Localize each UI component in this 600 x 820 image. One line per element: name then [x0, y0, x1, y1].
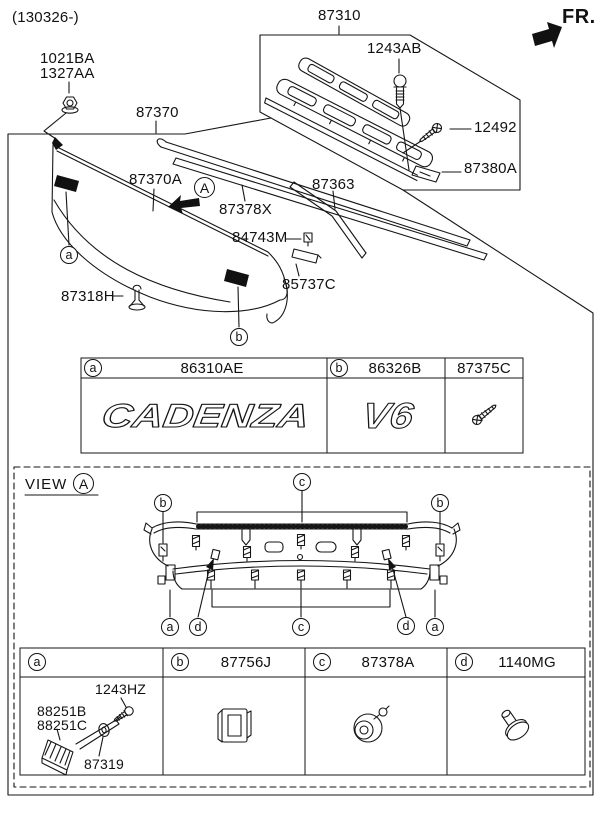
view-direction-arrow-icon — [168, 195, 200, 214]
callout-84743M: 84743M — [232, 230, 287, 245]
callout-85737C: 85737C — [282, 277, 336, 292]
fr-direction-arrow-icon — [532, 22, 562, 48]
callout-87310: 87310 — [318, 8, 361, 23]
svg-text:CADENZA: CADENZA — [100, 398, 312, 434]
callout-87319: 87319 — [84, 757, 124, 771]
nut-icon — [44, 82, 78, 139]
parts-diagram-page: CADENZA V6 — [0, 0, 600, 820]
callout-1243AB: 1243AB — [367, 41, 422, 56]
callout-87318H: 87318H — [61, 289, 115, 304]
fastener-col-a-marker: a — [28, 653, 46, 671]
view-a-drawing — [144, 491, 460, 617]
fastener-col-c-partno: 87378A — [334, 655, 442, 670]
callout-1327AA: 1327AA — [40, 66, 95, 81]
fastener-col-b-partno: 87756J — [192, 655, 300, 670]
emblem-col-a-partno: 86310AE — [104, 361, 320, 376]
clip-84743M-icon — [286, 233, 312, 246]
emblem-col-b-partno: 86326B — [350, 361, 440, 376]
screw-87375C-icon — [471, 402, 499, 427]
view-marker-d-left: d — [189, 618, 207, 636]
clip-87756J-icon — [218, 709, 251, 742]
fastener-col-c-marker: c — [313, 653, 331, 671]
fastener-col-d-marker: d — [455, 653, 473, 671]
emblem-col-c-partno: 87375C — [447, 361, 521, 376]
washer-87319-icon — [97, 722, 110, 756]
position-marker-a-flag — [54, 175, 79, 245]
callout-88251B: 88251B — [37, 704, 86, 718]
marker-a-circle: a — [60, 246, 78, 264]
fastener-col-d-partno: 1140MG — [474, 655, 580, 670]
view-title-letter: A — [73, 473, 94, 494]
grommet-87378A-icon — [354, 706, 389, 742]
callout-87380A: 87380A — [464, 161, 517, 176]
callout-88251C: 88251C — [37, 718, 87, 732]
fastener-col-b-marker: b — [171, 653, 189, 671]
view-marker-c-bottom: c — [292, 618, 310, 636]
callout-12492: 12492 — [474, 120, 517, 135]
view-clips-upper — [193, 535, 410, 562]
position-marker-b-flag — [224, 269, 249, 327]
view-marker-a-left: a — [161, 618, 179, 636]
callout-87370A: 87370A — [129, 172, 182, 187]
view-marker-b-left: b — [154, 494, 172, 512]
view-title: VIEW — [25, 477, 67, 492]
callout-87370: 87370 — [136, 105, 179, 120]
view-marker-b-right: b — [431, 494, 449, 512]
emblem-col-b-marker: b — [330, 359, 348, 377]
date-code: (130326-) — [12, 10, 79, 25]
view-clips-lower — [208, 570, 395, 588]
view-arrow-letter: A — [194, 177, 215, 198]
view-marker-c-top: c — [293, 473, 311, 491]
view-marker-d-right: d — [397, 617, 415, 635]
callout-87378X: 87378X — [219, 202, 272, 217]
strip-87380A — [264, 98, 461, 182]
callout-1021BA: 1021BA — [40, 51, 95, 66]
callout-87363: 87363 — [312, 177, 355, 192]
svg-text:V6: V6 — [360, 397, 417, 437]
trim-frame-lower — [273, 77, 435, 173]
marker-b-circle: b — [230, 328, 248, 346]
end-cap-85737C — [292, 249, 321, 276]
view-marker-a-right: a — [426, 618, 444, 636]
v6-emblem: V6 — [360, 397, 417, 437]
cadenza-emblem: CADENZA — [100, 398, 312, 434]
emblem-col-a-marker: a — [84, 359, 102, 377]
rivet-1140MG-icon — [495, 705, 532, 744]
fr-label: FR. — [562, 7, 596, 27]
clip-87318H-icon — [113, 285, 145, 310]
callout-1243HZ: 1243HZ — [95, 682, 146, 696]
